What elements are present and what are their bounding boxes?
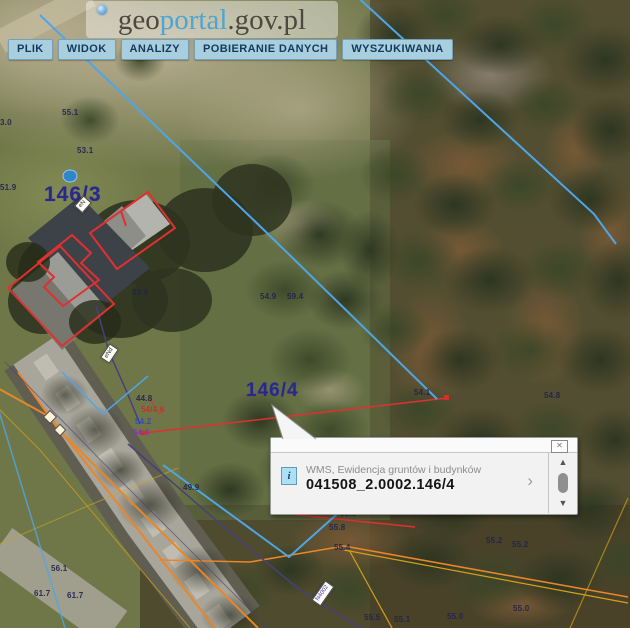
main-menubar: PLIKWIDOKANALIZYPOBIERANIE DANYCHWYSZUKI… xyxy=(8,39,453,60)
elevation-label: 44.8 xyxy=(136,394,152,403)
menu-item-plik[interactable]: PLIK xyxy=(8,39,53,60)
popup-titlebar: ✕ xyxy=(271,438,577,453)
elevation-label: 55.5 xyxy=(364,613,380,622)
logo-part-geo: geo xyxy=(118,5,160,35)
elevation-label: 55.2 xyxy=(512,540,528,549)
geoportal-logo[interactable]: geoportal.gov.pl xyxy=(86,1,338,38)
elevation-label: 55.8 xyxy=(329,523,345,532)
menu-item-widok[interactable]: WIDOK xyxy=(58,39,116,60)
elevation-label: 49.9 xyxy=(183,483,199,492)
parcel-number-label: 146/3 xyxy=(44,183,102,207)
logo-part-portal: portal xyxy=(160,5,228,35)
elevation-label: 54.1 xyxy=(414,388,430,397)
menu-item-pobieranie-danych[interactable]: POBIERANIE DANYCH xyxy=(194,39,337,60)
line-name-plate: N4002 xyxy=(312,581,335,607)
elevation-label: 55.1 xyxy=(62,108,78,117)
elevation-label: 61.7 xyxy=(34,589,50,598)
geoportal-map-window: 55.13.053.151.953.954.959.454.154.844.85… xyxy=(0,0,630,628)
scroll-up-icon[interactable]: ▲ xyxy=(559,458,568,467)
menu-item-wyszukiwania[interactable]: WYSZUKIWANIA xyxy=(342,39,452,60)
elevation-label: 56.1 xyxy=(51,564,67,573)
elevation-label: 54.9 xyxy=(260,292,276,301)
elevation-label: 54.8 xyxy=(544,391,560,400)
elevation-label: 53.9 xyxy=(132,288,148,297)
feature-source-label: WMS, Ewidencja gruntów i budynków xyxy=(306,463,481,477)
elevation-label: 54/4.6 xyxy=(141,405,164,414)
parcel-number-label: 146/4 xyxy=(246,380,299,402)
feature-info-popup: ✕ i WMS, Ewidencja gruntów i budynków 04… xyxy=(270,437,578,515)
elevation-label: 53.1 xyxy=(77,146,93,155)
line-name-plate: eNd xyxy=(100,343,119,363)
elevation-label: 3.0 xyxy=(0,118,12,127)
map-label-layer: 55.13.053.151.953.954.959.454.154.844.85… xyxy=(0,0,630,628)
chevron-right-icon[interactable]: › xyxy=(527,471,533,491)
feature-id-label: 041508_2.0002.146/4 xyxy=(306,477,481,494)
popup-body: i WMS, Ewidencja gruntów i budynków 0415… xyxy=(271,453,577,513)
menu-item-analizy[interactable]: ANALIZY xyxy=(121,39,189,60)
popup-scrollbar: ▲ ▼ xyxy=(548,453,577,513)
elevation-label: 55.0 xyxy=(513,604,529,613)
elevation-label: 55.1 xyxy=(394,615,410,624)
elevation-label: 55.4 xyxy=(334,543,350,552)
elevation-label: 61.7 xyxy=(67,591,83,600)
elevation-label: 51.9 xyxy=(0,183,16,192)
globe-icon xyxy=(97,5,107,15)
elevation-label: 54.6 xyxy=(133,428,149,437)
scrollbar-thumb[interactable] xyxy=(558,473,568,493)
elevation-label: 55.0 xyxy=(447,612,463,621)
elevation-label: 54.2 xyxy=(135,417,151,426)
close-icon[interactable]: ✕ xyxy=(551,440,568,453)
elevation-label: 55.2 xyxy=(486,536,502,545)
info-icon: i xyxy=(281,467,297,485)
logo-part-govpl: .gov.pl xyxy=(227,5,306,35)
scroll-down-icon[interactable]: ▼ xyxy=(559,499,568,508)
elevation-label: 59.4 xyxy=(287,292,303,301)
feature-result-row[interactable]: i WMS, Ewidencja gruntów i budynków 0415… xyxy=(281,463,517,494)
